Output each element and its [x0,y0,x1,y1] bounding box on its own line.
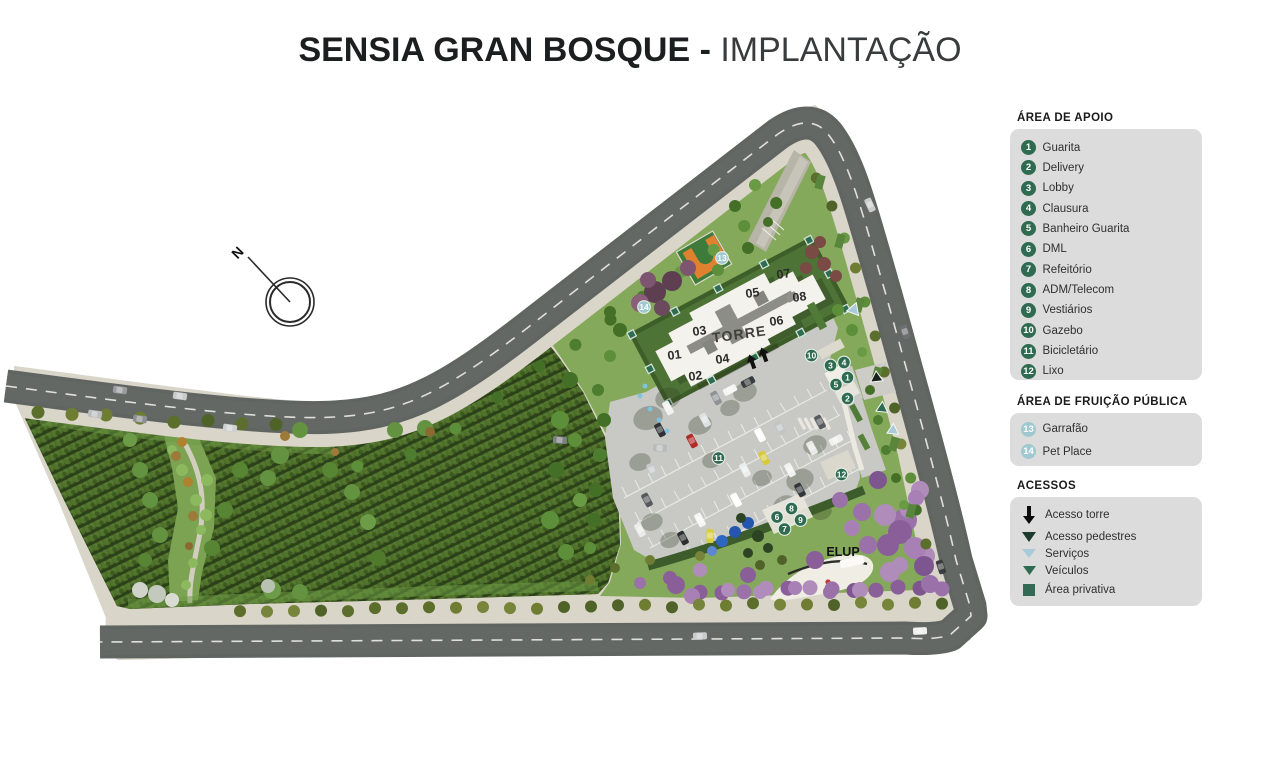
svg-text:5: 5 [834,380,839,390]
svg-text:2: 2 [845,394,850,404]
svg-text:1: 1 [845,373,850,383]
svg-text:11: 11 [714,453,723,463]
svg-text:01: 01 [667,347,683,363]
svg-text:05: 05 [745,285,761,301]
svg-text:08: 08 [792,289,808,305]
svg-text:7: 7 [782,524,787,534]
svg-text:6: 6 [775,512,780,522]
svg-text:10: 10 [807,351,817,361]
svg-text:03: 03 [692,323,708,339]
svg-text:04: 04 [715,351,731,367]
svg-text:02: 02 [688,368,704,384]
svg-text:8: 8 [789,504,794,514]
svg-text:ELUP: ELUP [826,545,859,559]
svg-text:4: 4 [842,358,847,368]
svg-text:07: 07 [776,266,792,282]
svg-text:3: 3 [828,361,833,371]
svg-text:06: 06 [769,313,785,329]
svg-text:9: 9 [798,515,803,525]
svg-text:14: 14 [639,302,649,312]
svg-text:12: 12 [837,470,847,480]
svg-text:13: 13 [717,253,727,263]
